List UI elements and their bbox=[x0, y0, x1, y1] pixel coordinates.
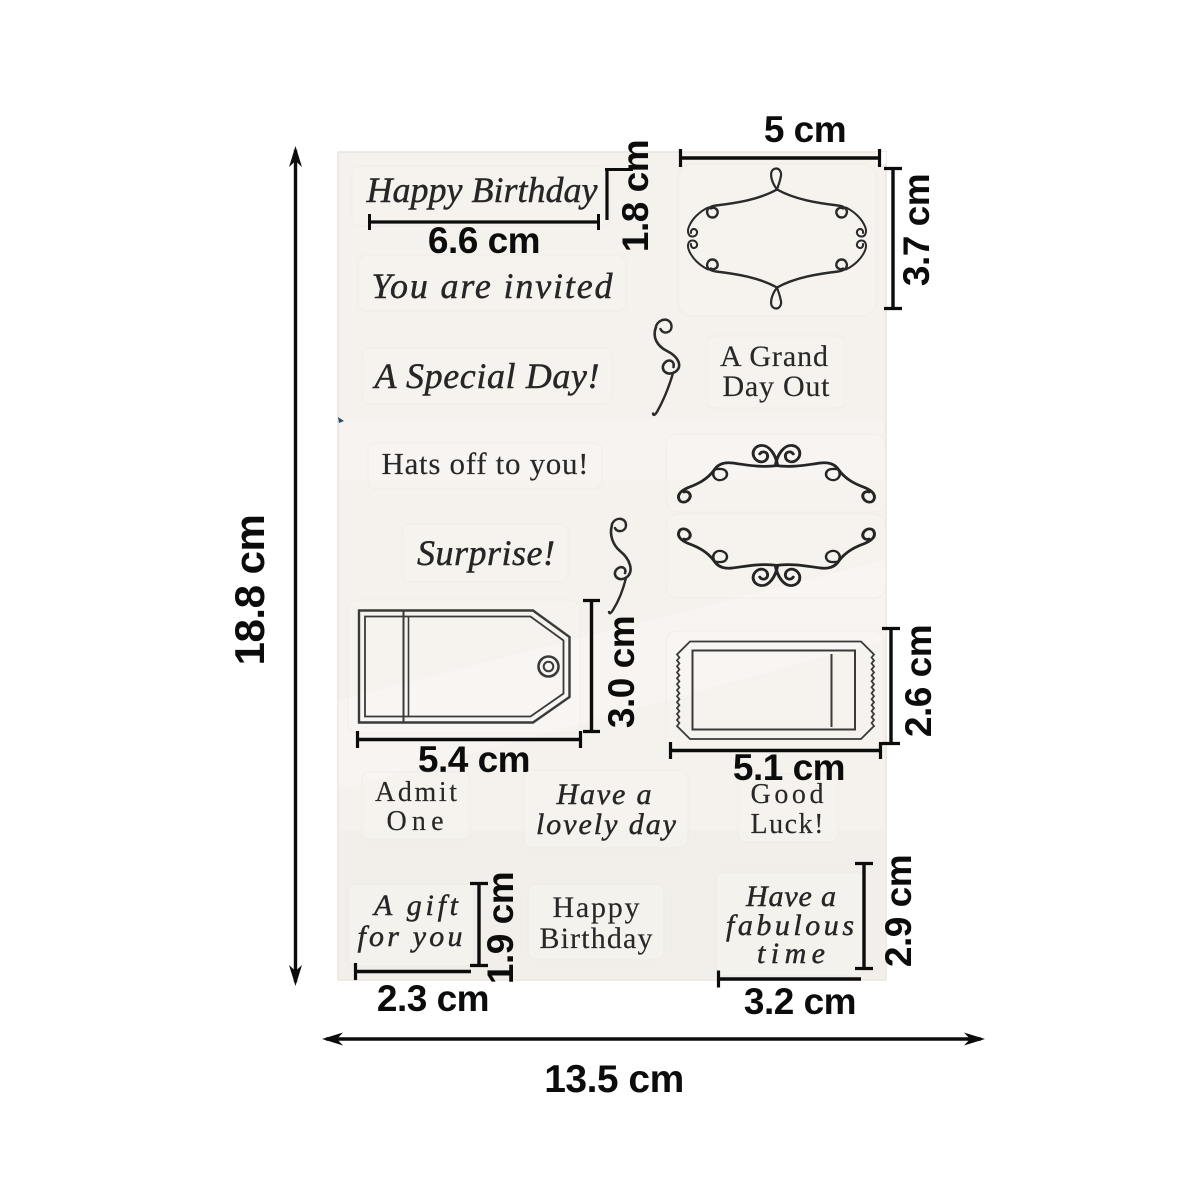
svg-text:3.2 cm: 3.2 cm bbox=[744, 981, 856, 1022]
svg-text:Birthday: Birthday bbox=[540, 922, 653, 955]
svg-text:Happy Birthday: Happy Birthday bbox=[366, 170, 598, 210]
svg-text:1.8 cm: 1.8 cm bbox=[615, 140, 656, 252]
svg-text:1.9 cm: 1.9 cm bbox=[480, 872, 521, 984]
svg-text:5 cm: 5 cm bbox=[764, 109, 846, 150]
svg-text:Happy: Happy bbox=[553, 891, 640, 924]
svg-text:A Special Day!: A Special Day! bbox=[373, 356, 600, 396]
svg-text:lovely day: lovely day bbox=[536, 808, 677, 841]
svg-text:A Grand: A Grand bbox=[720, 340, 828, 373]
svg-text:13.5 cm: 13.5 cm bbox=[544, 1058, 684, 1101]
svg-text:3.0 cm: 3.0 cm bbox=[601, 616, 642, 728]
svg-text:Surprise!: Surprise! bbox=[417, 533, 555, 573]
svg-text:Admit: Admit bbox=[375, 777, 457, 808]
svg-text:Have a: Have a bbox=[556, 778, 652, 811]
svg-text:Luck!: Luck! bbox=[751, 809, 824, 840]
svg-text:Hats off to you!: Hats off to you! bbox=[382, 446, 589, 481]
svg-text:5.1 cm: 5.1 cm bbox=[733, 747, 845, 788]
svg-text:You are invited: You are invited bbox=[372, 266, 614, 306]
svg-text:2.6 cm: 2.6 cm bbox=[898, 625, 939, 737]
svg-text:18.8 cm: 18.8 cm bbox=[226, 515, 273, 666]
svg-text:Day Out: Day Out bbox=[723, 370, 831, 403]
svg-text:2.3 cm: 2.3 cm bbox=[377, 978, 489, 1019]
svg-text:A gift: A gift bbox=[372, 889, 459, 922]
svg-text:2.9 cm: 2.9 cm bbox=[878, 855, 919, 967]
svg-text:One: One bbox=[387, 806, 444, 837]
svg-text:3.7 cm: 3.7 cm bbox=[896, 174, 937, 286]
